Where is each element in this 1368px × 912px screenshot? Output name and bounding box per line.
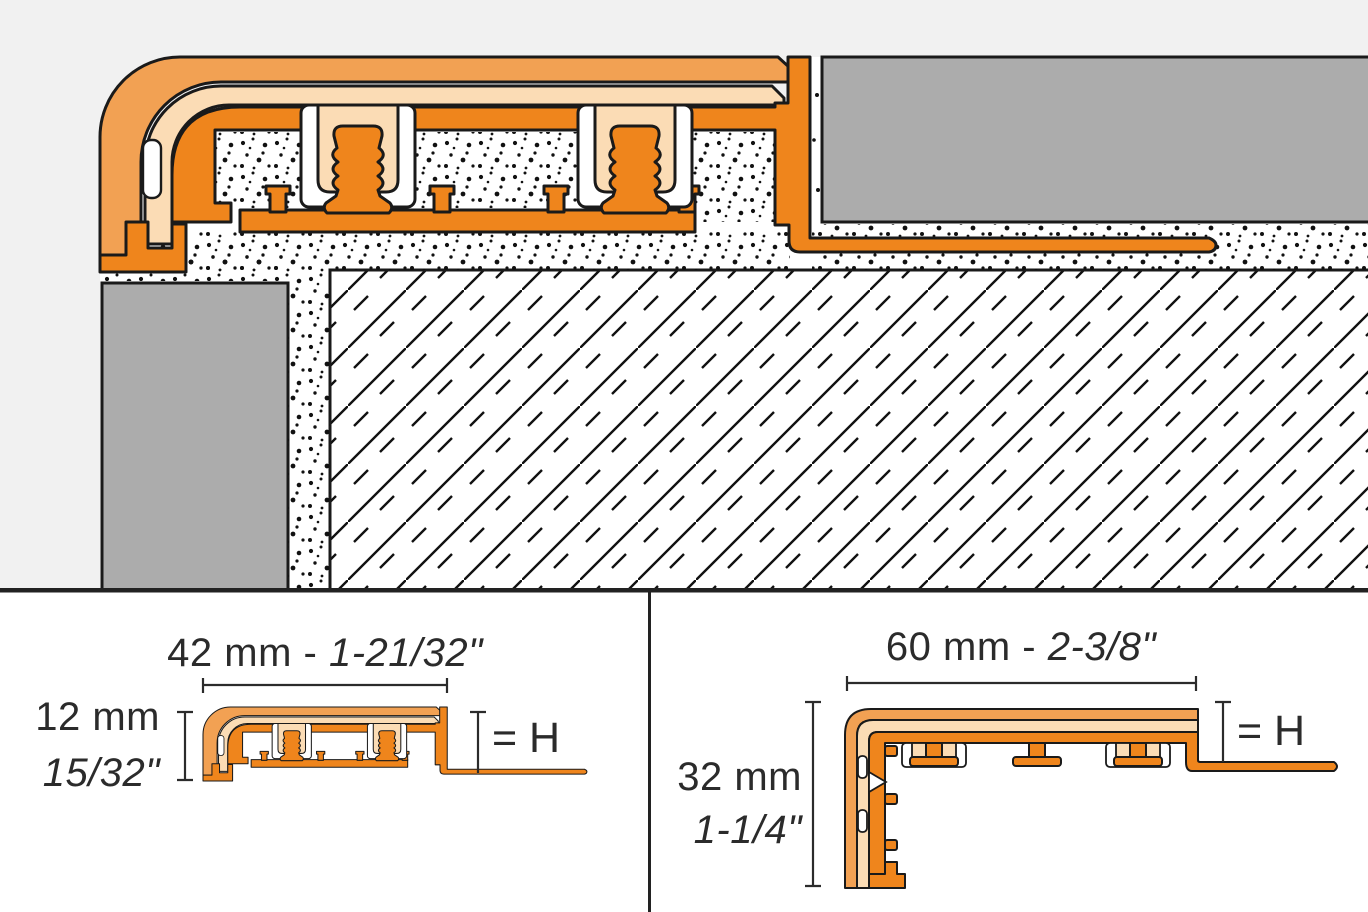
height-metric-label: 32 mm [677,755,802,799]
profile-42mm-view: 42 mm - 1-21/32" 12 mm 15/32" = H [35,631,587,795]
leg-slot [858,810,867,832]
width-dimension-label: 60 mm - 2-3/8" [886,625,1157,669]
width-dimension-42mm: 42 mm - 1-21/32" [167,631,484,693]
vertical-divider [648,592,651,912]
height-dimension-12mm: 12 mm 15/32" [35,695,193,795]
installation-cross-section [0,0,1368,592]
width-dimension-label: 42 mm - 1-21/32" [167,631,484,675]
width-dimension-60mm: 60 mm - 2-3/8" [847,625,1196,691]
height-dimension-32mm: 32 mm 1-1/4" [677,702,821,886]
tread-tile [822,57,1368,222]
profile-diagram-svg: 42 mm - 1-21/32" 12 mm 15/32" = H [0,0,1368,912]
height-imperial-label: 15/32" [43,751,162,795]
plain-stud-60 [1013,743,1061,766]
height-reference-right: = H [1215,702,1305,762]
leg-slot [858,756,867,778]
technical-drawing-page: 42 mm - 1-21/32" 12 mm 15/32" = H [0,0,1368,912]
height-imperial-label: 1-1/4" [694,808,804,852]
leg-tab [885,794,897,804]
height-metric-label: 12 mm [35,695,160,739]
leg-tab [885,746,897,756]
height-reference-left: = H [470,712,560,773]
ribbed-stud-60 [902,743,966,767]
leg-tab [885,840,897,850]
riser-tile [102,283,288,590]
height-reference-label: = H [492,714,560,762]
profile-60mm-view: 60 mm - 2-3/8" 32 mm 1-1/4" = H [677,625,1337,888]
horizontal-divider [0,588,1368,593]
substrate-hatch [330,270,1368,590]
ribbed-stud-60 [1106,743,1170,767]
height-reference-label: = H [1237,707,1305,755]
